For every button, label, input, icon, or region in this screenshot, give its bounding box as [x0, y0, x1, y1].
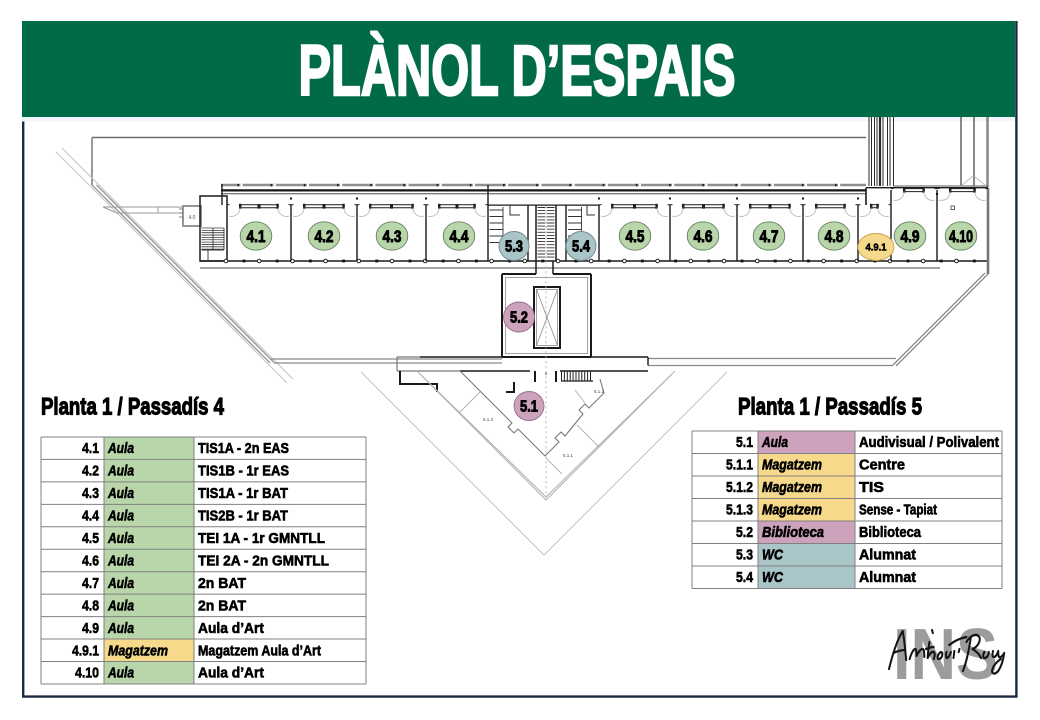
svg-text:TIS1B - 1r EAS: TIS1B - 1r EAS [198, 463, 289, 480]
svg-text:5.1.3: 5.1.3 [483, 417, 494, 422]
svg-text:4.9: 4.9 [901, 228, 920, 246]
svg-text:Magatzem: Magatzem [762, 479, 822, 496]
svg-text:4.10: 4.10 [949, 228, 973, 246]
svg-text:Aula: Aula [107, 665, 134, 682]
svg-text:Aula d’Art: Aula d’Art [198, 620, 264, 637]
svg-text:4.8: 4.8 [825, 228, 844, 246]
svg-text:Audivisual / Polivalent: Audivisual / Polivalent [859, 434, 999, 451]
svg-text:Aula: Aula [107, 463, 134, 480]
svg-text:5.3: 5.3 [736, 547, 753, 564]
svg-text:Aula: Aula [107, 485, 134, 502]
svg-text:Biblioteca: Biblioteca [859, 524, 922, 541]
svg-text:4.4: 4.4 [82, 508, 100, 525]
svg-text:TIS2B - 1r BAT: TIS2B - 1r BAT [198, 508, 288, 525]
svg-text:4.5: 4.5 [626, 228, 645, 246]
svg-text:Aula: Aula [107, 508, 134, 525]
svg-text:5.3: 5.3 [505, 239, 523, 256]
svg-text:Aula: Aula [107, 440, 134, 457]
svg-text:Magatzem: Magatzem [762, 457, 822, 474]
svg-text:4.7: 4.7 [760, 228, 779, 246]
svg-text:5.4: 5.4 [572, 239, 590, 256]
svg-text:5.1: 5.1 [736, 434, 753, 451]
svg-text:4.9.1: 4.9.1 [72, 642, 99, 659]
svg-text:5.1.3: 5.1.3 [726, 502, 753, 519]
svg-text:4.10: 4.10 [75, 665, 99, 682]
svg-text:Sense - Tapiat: Sense - Tapiat [859, 502, 937, 519]
svg-text:5.1.1: 5.1.1 [563, 453, 574, 458]
svg-text:TIS: TIS [859, 479, 884, 496]
svg-text:Aula: Aula [761, 434, 788, 451]
svg-text:Planta 1 / Passadís 5: Planta 1 / Passadís 5 [738, 394, 922, 421]
svg-text:4.5: 4.5 [82, 530, 99, 547]
svg-text:4.9.1: 4.9.1 [866, 242, 887, 254]
svg-text:4.8: 4.8 [82, 597, 99, 614]
svg-text:WC: WC [762, 569, 784, 586]
svg-text:TIS1A - 2n EAS: TIS1A - 2n EAS [198, 440, 289, 457]
svg-text:Magatzem: Magatzem [762, 502, 822, 519]
svg-text:5.1.1: 5.1.1 [726, 457, 753, 474]
svg-text:TEI 1A - 1r GMNTLL: TEI 1A - 1r GMNTLL [198, 530, 325, 547]
svg-text:TEI 2A - 2n GMNTLL: TEI 2A - 2n GMNTLL [198, 552, 329, 569]
svg-text:Aula: Aula [107, 575, 134, 592]
svg-text:Biblioteca: Biblioteca [762, 524, 824, 541]
svg-text:2n BAT: 2n BAT [198, 575, 246, 592]
svg-text:4.6: 4.6 [694, 228, 713, 246]
svg-text:5.1: 5.1 [520, 399, 538, 416]
svg-text:5.2: 5.2 [736, 524, 753, 541]
svg-text:WC: WC [762, 547, 784, 564]
svg-text:Planta 1 / Passadís 4: Planta 1 / Passadís 4 [41, 394, 224, 421]
svg-text:Aula: Aula [107, 530, 134, 547]
svg-text:5.4: 5.4 [736, 569, 754, 586]
svg-text:4.2: 4.2 [315, 228, 334, 246]
svg-text:Magatzem Aula d’Art: Magatzem Aula d’Art [198, 642, 321, 659]
svg-text:Aula d’Art: Aula d’Art [198, 665, 264, 682]
svg-text:4.6: 4.6 [82, 552, 99, 569]
svg-text:Aula: Aula [107, 597, 134, 614]
svg-text:4.1: 4.1 [247, 228, 266, 246]
svg-text:Magatzem: Magatzem [108, 642, 168, 659]
svg-text:Centre: Centre [859, 457, 905, 474]
svg-text:Aula: Aula [107, 620, 134, 637]
svg-text:Alumnat: Alumnat [859, 547, 916, 564]
svg-text:Aula: Aula [107, 552, 134, 569]
svg-text:5.1.2: 5.1.2 [726, 479, 753, 496]
svg-text:Alumnat: Alumnat [859, 569, 916, 586]
svg-text:4.4: 4.4 [450, 228, 470, 246]
svg-text:5.1.2: 5.1.2 [594, 389, 605, 394]
svg-text:4.1: 4.1 [82, 440, 99, 457]
svg-text:PLÀNOL D’ESPAIS: PLÀNOL D’ESPAIS [299, 32, 736, 111]
svg-text:4.3: 4.3 [82, 485, 99, 502]
svg-text:4.3: 4.3 [383, 228, 402, 246]
svg-text:4.0: 4.0 [189, 215, 196, 221]
svg-text:TIS1A - 1r BAT: TIS1A - 1r BAT [198, 485, 288, 502]
svg-text:4.2: 4.2 [82, 463, 99, 480]
svg-text:5.2: 5.2 [510, 310, 528, 327]
svg-text:2n BAT: 2n BAT [198, 597, 246, 614]
svg-text:4.9: 4.9 [82, 620, 99, 637]
svg-text:4.7: 4.7 [82, 575, 99, 592]
